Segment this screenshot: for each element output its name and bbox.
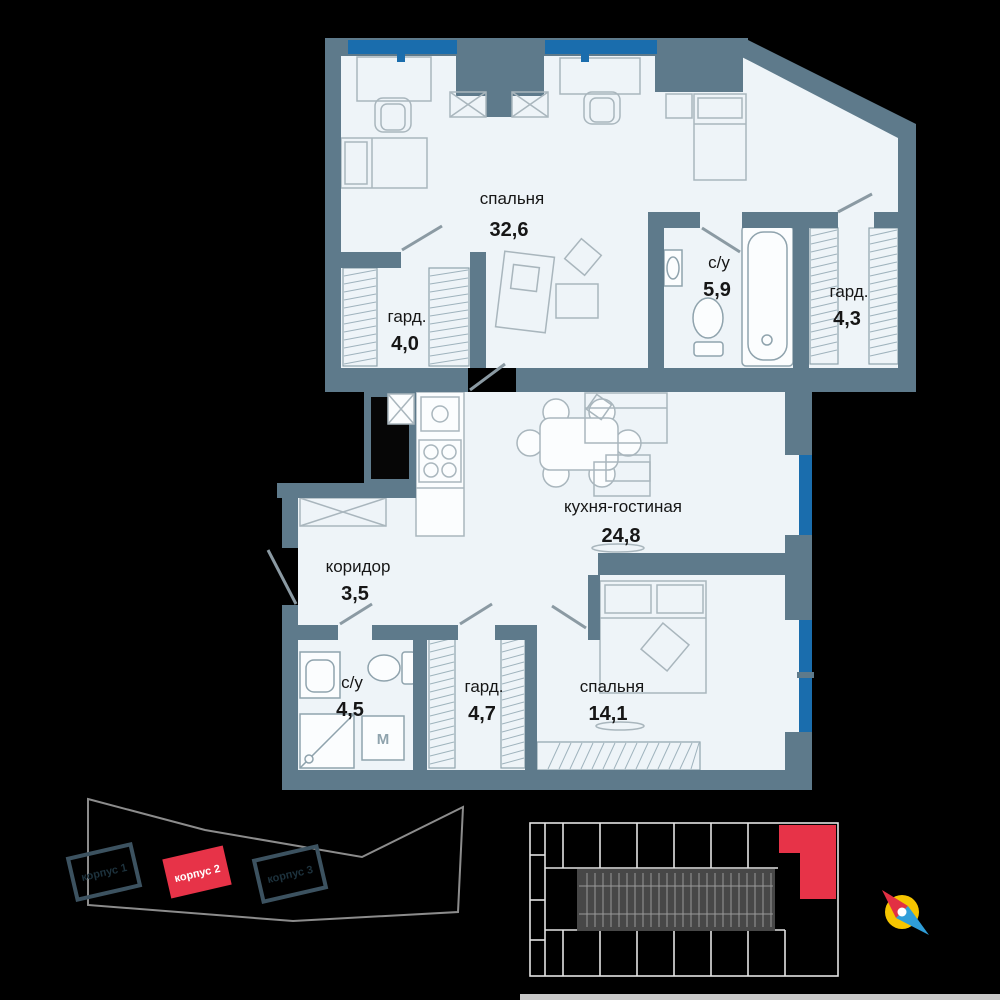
svg-text:спальня: спальня bbox=[580, 677, 645, 696]
compass-icon bbox=[882, 890, 929, 935]
unit-dividers-top bbox=[563, 823, 748, 868]
svg-text:гард.: гард. bbox=[465, 677, 504, 696]
svg-text:4,7: 4,7 bbox=[468, 703, 496, 725]
svg-text:с/у: с/у bbox=[341, 673, 363, 692]
building-korpus-1[interactable]: корпус 1 bbox=[68, 844, 140, 899]
bathtub-icon bbox=[742, 226, 793, 366]
kitchen-counter-icon bbox=[416, 392, 464, 536]
floor-plate-minimap bbox=[520, 823, 1000, 1000]
adjacent-section-bar bbox=[520, 994, 1000, 1000]
toilet-icon bbox=[693, 298, 723, 356]
svg-text:гард.: гард. bbox=[388, 307, 427, 326]
site-plan: корпус 1 корпус 2 корпус 3 bbox=[68, 799, 463, 921]
svg-text:коридор: коридор bbox=[326, 557, 391, 576]
svg-text:с/у: с/у bbox=[708, 253, 730, 272]
apartment-plan: M bbox=[268, 38, 916, 790]
building-korpus-3[interactable]: корпус 3 bbox=[254, 846, 326, 901]
sink-icon bbox=[664, 250, 682, 286]
washing-machine-icon: M bbox=[362, 716, 404, 760]
svg-text:спальня: спальня bbox=[480, 189, 545, 208]
svg-text:кухня-гостиная: кухня-гостиная bbox=[564, 497, 682, 516]
svg-text:32,6: 32,6 bbox=[490, 219, 529, 241]
sink-icon bbox=[300, 652, 340, 698]
svg-text:4,5: 4,5 bbox=[336, 699, 364, 721]
shower-icon bbox=[300, 714, 354, 768]
washing-machine-label: M bbox=[377, 731, 390, 748]
svg-text:4,3: 4,3 bbox=[833, 308, 861, 330]
svg-text:3,5: 3,5 bbox=[341, 583, 369, 605]
toilet-icon bbox=[368, 652, 415, 684]
svg-text:4,0: 4,0 bbox=[391, 333, 419, 355]
svg-text:14,1: 14,1 bbox=[589, 703, 628, 725]
wall-shaft-top bbox=[456, 56, 544, 96]
building-core bbox=[577, 869, 775, 931]
site-boundary bbox=[88, 799, 463, 921]
svg-text:5,9: 5,9 bbox=[703, 279, 731, 301]
building-korpus-2[interactable]: корпус 2 bbox=[162, 846, 231, 899]
svg-text:гард.: гард. bbox=[830, 282, 869, 301]
svg-text:корпус 3: корпус 3 bbox=[266, 864, 314, 886]
svg-text:24,8: 24,8 bbox=[602, 525, 641, 547]
highlighted-unit[interactable] bbox=[779, 825, 836, 899]
floorplan-canvas: M bbox=[0, 0, 1000, 1000]
floorplan-page: M bbox=[0, 0, 1000, 1000]
wall-shaft-leg bbox=[486, 92, 512, 117]
unit-dividers-bottom bbox=[563, 930, 785, 976]
